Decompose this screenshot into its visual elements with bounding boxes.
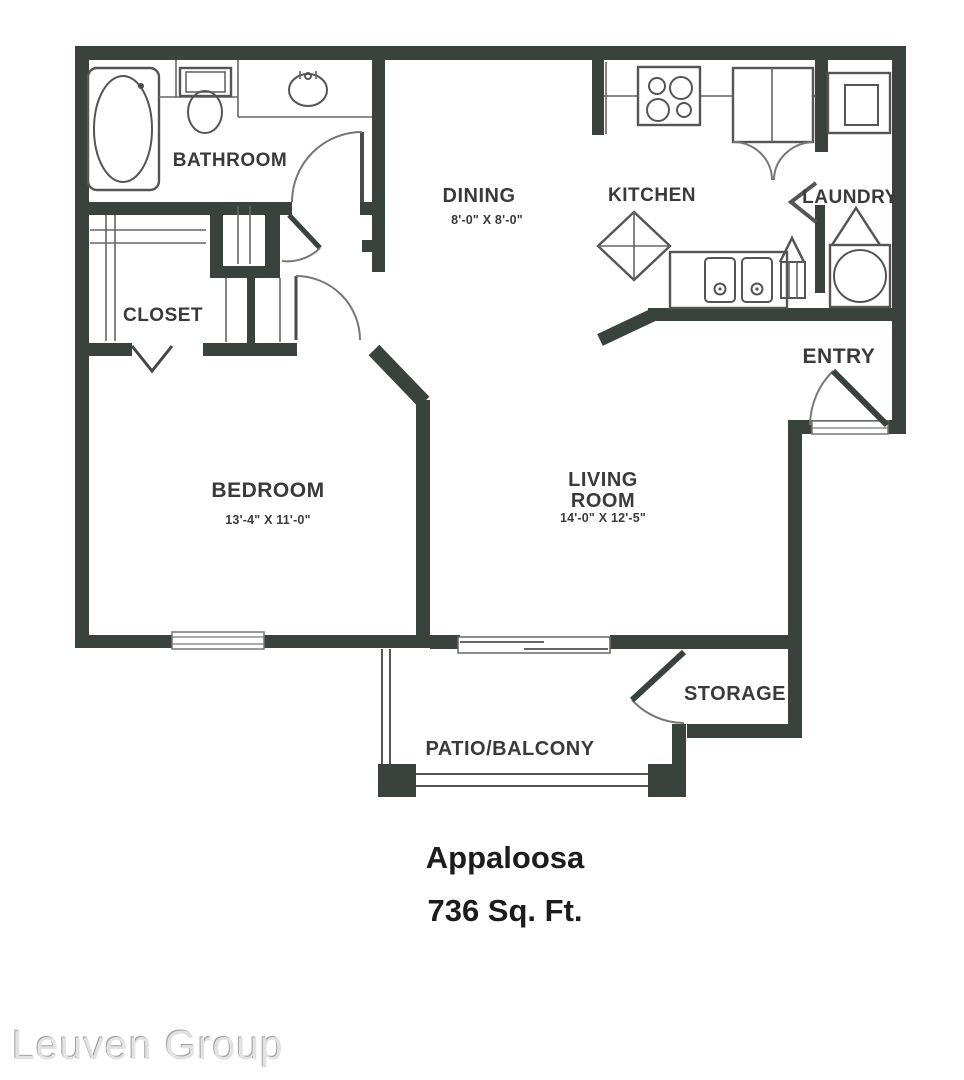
wall-washer-closet-left	[815, 205, 825, 293]
washer-icon	[830, 245, 890, 307]
wall-kitchen-half	[648, 308, 906, 321]
wall-kitchen-laundry	[815, 60, 828, 152]
wall-living-bottom	[430, 635, 460, 649]
bedroom-door	[296, 276, 360, 340]
patio-post-right	[648, 764, 686, 797]
wall-right	[892, 46, 906, 434]
wall-bathroom-door-stub	[360, 202, 385, 215]
wall-patio-right-stub	[672, 724, 686, 770]
wall-kitchen-half-diagonal	[600, 314, 655, 340]
living-room-label-line2: ROOM	[571, 490, 635, 512]
wall-hall-stub	[362, 240, 380, 252]
patio-sliding-door-icon	[458, 637, 610, 653]
wall-storage-bottom	[687, 724, 788, 738]
patio-label: PATIO/BALCONY	[425, 738, 594, 760]
closet-label: CLOSET	[123, 305, 203, 326]
wall-vestibule-cavity	[247, 278, 255, 344]
wall-bedroom-living-divider	[416, 400, 430, 648]
wall-vestibule-right	[265, 202, 280, 270]
kitchen-label: KITCHEN	[608, 185, 696, 206]
entry-door	[810, 371, 888, 434]
kitchen-sink-icon	[670, 252, 787, 308]
wall-top	[75, 46, 906, 60]
bedroom-window-icon	[172, 632, 264, 649]
storage-label: STORAGE	[684, 683, 786, 705]
laundry-label: LAUNDRY	[802, 187, 898, 208]
floor-plan-page: BATHROOM CLOSET DINING 8'-0" X 8'-0" KIT…	[0, 0, 964, 1080]
bathroom-label: BATHROOM	[173, 150, 287, 171]
plan-title: Appaloosa	[300, 840, 710, 876]
living-room-label-line1: LIVING	[568, 469, 638, 491]
toilet-icon	[159, 60, 238, 133]
bathtub-icon	[88, 68, 159, 190]
stove-icon	[638, 67, 700, 125]
dining-dimensions: 8'-0" X 8'-0"	[451, 213, 523, 227]
patio-railing	[382, 649, 648, 786]
kitchen-island-icon	[598, 212, 670, 280]
wall-storage-top	[610, 635, 788, 649]
room-labels: BATHROOM CLOSET DINING 8'-0" X 8'-0" KIT…	[123, 150, 898, 760]
watermark-logo: Leuven Group	[12, 1022, 284, 1069]
wall-bathroom-bottom	[75, 202, 292, 215]
wall-vestibule-left	[210, 202, 223, 270]
wall-closet-bottom-right	[203, 343, 297, 356]
wall-vestibule-connector	[210, 266, 280, 278]
entry-label: ENTRY	[803, 345, 876, 368]
closet-bifold-door-icon	[132, 346, 172, 371]
wall-closet-bottom-left	[75, 343, 132, 356]
bedroom-dimensions: 13'-4" X 11'-0"	[225, 513, 310, 527]
bedroom-label: BEDROOM	[211, 479, 324, 502]
wall-bedroom-diagonal	[374, 350, 424, 402]
wall-living-right	[788, 420, 802, 738]
refrigerator-icon	[733, 68, 813, 180]
bathroom-sink-icon	[238, 60, 372, 117]
living-room-dimensions: 14'-0" X 12'-5"	[560, 511, 646, 525]
vestibule-door	[282, 215, 320, 261]
washer-closet-bifold-icon	[832, 208, 880, 245]
wall-kitchen-stub	[592, 60, 604, 135]
plan-area-size: 736 Sq. Ft.	[300, 893, 710, 929]
bathroom-door	[292, 132, 362, 202]
dryer-icon	[828, 73, 890, 133]
storage-door	[632, 652, 684, 723]
patio-post-left	[378, 764, 416, 797]
dining-label: DINING	[443, 185, 516, 207]
